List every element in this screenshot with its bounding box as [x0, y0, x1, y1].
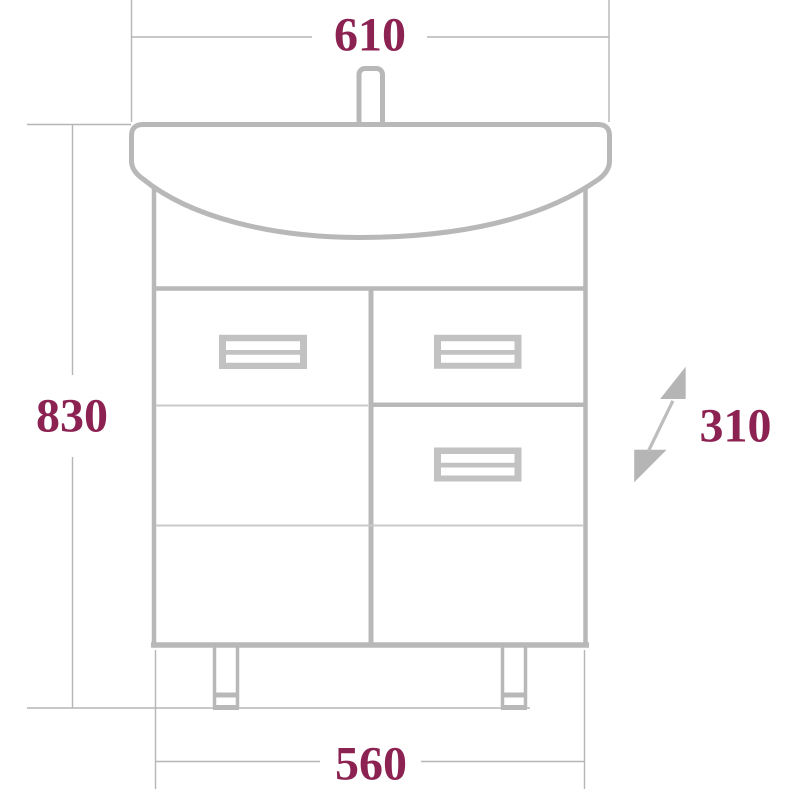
svg-text:830: 830	[36, 390, 108, 443]
svg-text:560: 560	[335, 738, 407, 791]
svg-text:310: 310	[700, 400, 772, 453]
svg-text:610: 610	[334, 9, 406, 62]
